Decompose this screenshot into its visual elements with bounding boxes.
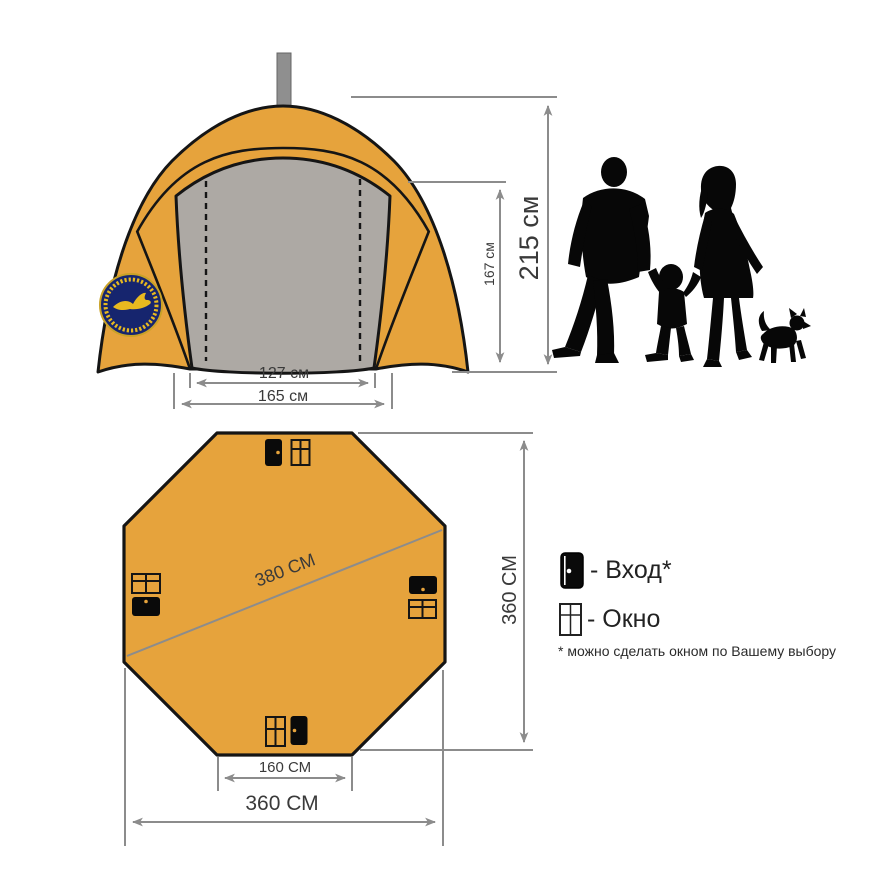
plan-width-label: 360 СМ — [212, 792, 352, 816]
door-icon — [409, 576, 437, 594]
dog-silhouette — [759, 308, 811, 363]
tent-plan-view — [124, 433, 533, 846]
front-inner-height-label: 167 см — [479, 214, 499, 314]
door-icon — [132, 597, 160, 616]
front-outer-width-label: 165 см — [233, 388, 333, 406]
front-total-height-label: 215 см — [514, 168, 544, 308]
tent-spec-diagram: 127 см 165 см 167 см 215 см 380 СМ 360 С… — [0, 0, 875, 875]
legend-entrance-label: - Вход* — [590, 556, 672, 585]
door-icon — [291, 716, 308, 745]
child-silhouette — [645, 264, 701, 362]
legend-footnote: * можно сделать окном по Вашему выбору — [558, 643, 836, 659]
window-icon — [560, 604, 581, 635]
plan-height-label: 360 СМ — [499, 530, 521, 650]
plan-entrance-width-label: 160 СМ — [235, 759, 335, 776]
brand-badge-icon — [100, 274, 162, 336]
legend-window-label: - Окно — [587, 605, 660, 634]
door-icon — [561, 553, 583, 588]
woman-silhouette — [694, 166, 763, 367]
man-silhouette — [552, 157, 651, 363]
door-icon — [265, 439, 282, 466]
diagram-canvas — [0, 0, 875, 875]
front-entrance-panel — [176, 158, 390, 373]
legend-icons — [560, 553, 583, 635]
family-scale-silhouette — [552, 157, 811, 367]
front-inner-width-label: 127 см — [234, 365, 334, 383]
